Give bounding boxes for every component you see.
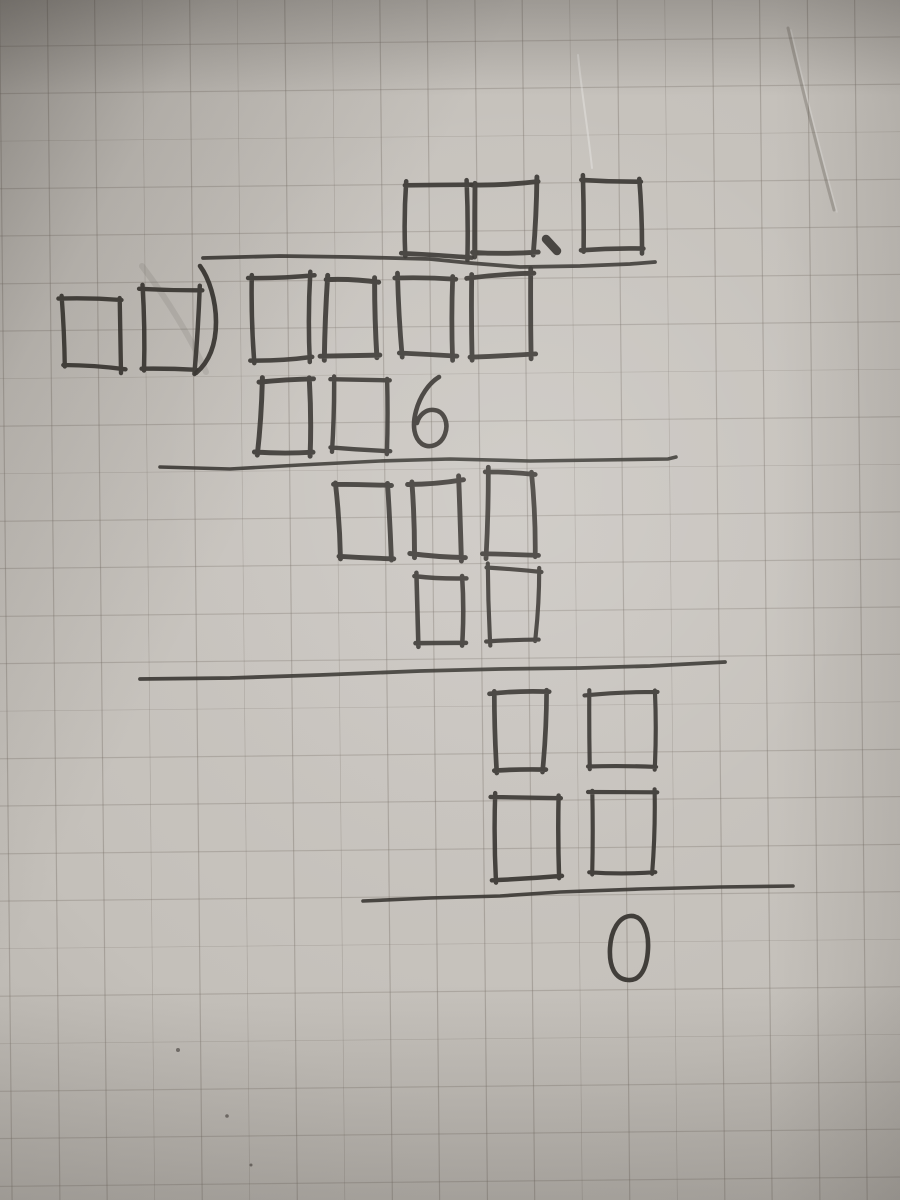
second-product-box-2: [588, 789, 657, 874]
pencil-drawing-layer: [0, 0, 900, 1200]
bring-down-box-1: [414, 573, 466, 647]
first-product-box-1: [254, 378, 313, 457]
divisor-box-2: [139, 285, 202, 374]
decimal-point: [546, 239, 557, 251]
dividend-box-3: [395, 273, 457, 360]
second-difference-box-2: [585, 690, 658, 770]
crease-top-right: [788, 28, 834, 210]
division-bar: [203, 256, 655, 267]
first-difference-box-3: [482, 467, 538, 558]
digit-six: [414, 377, 446, 446]
first-difference-box-2: [408, 476, 466, 561]
bring-down-box-2: [486, 564, 541, 646]
subtraction-line-2: [140, 662, 725, 679]
paper-speck-1: [176, 1048, 180, 1052]
digit-zero: [610, 916, 648, 980]
dividend-box-2: [320, 275, 380, 360]
worksheet-photo: Photograph of a handwritten long-divisio…: [0, 0, 900, 1200]
quotient-box-3: [581, 175, 643, 253]
quotient-box-1: [401, 180, 472, 260]
scratch-top-center: [578, 55, 592, 168]
paper-speck-2: [225, 1114, 229, 1118]
paper-speck-3: [250, 1164, 253, 1167]
subtraction-line-3: [363, 886, 793, 901]
first-difference-box-1: [334, 483, 394, 560]
dividend-box-4: [467, 269, 536, 361]
divisor-box-1: [58, 296, 125, 373]
dividend-box-1: [248, 272, 314, 363]
second-product-box-1: [491, 793, 562, 883]
second-difference-box-1: [490, 690, 550, 773]
quotient-box-2: [472, 177, 538, 257]
crease-top-right-highlight: [791, 30, 837, 212]
subtraction-line-1: [160, 457, 676, 469]
first-product-box-2: [330, 377, 390, 455]
